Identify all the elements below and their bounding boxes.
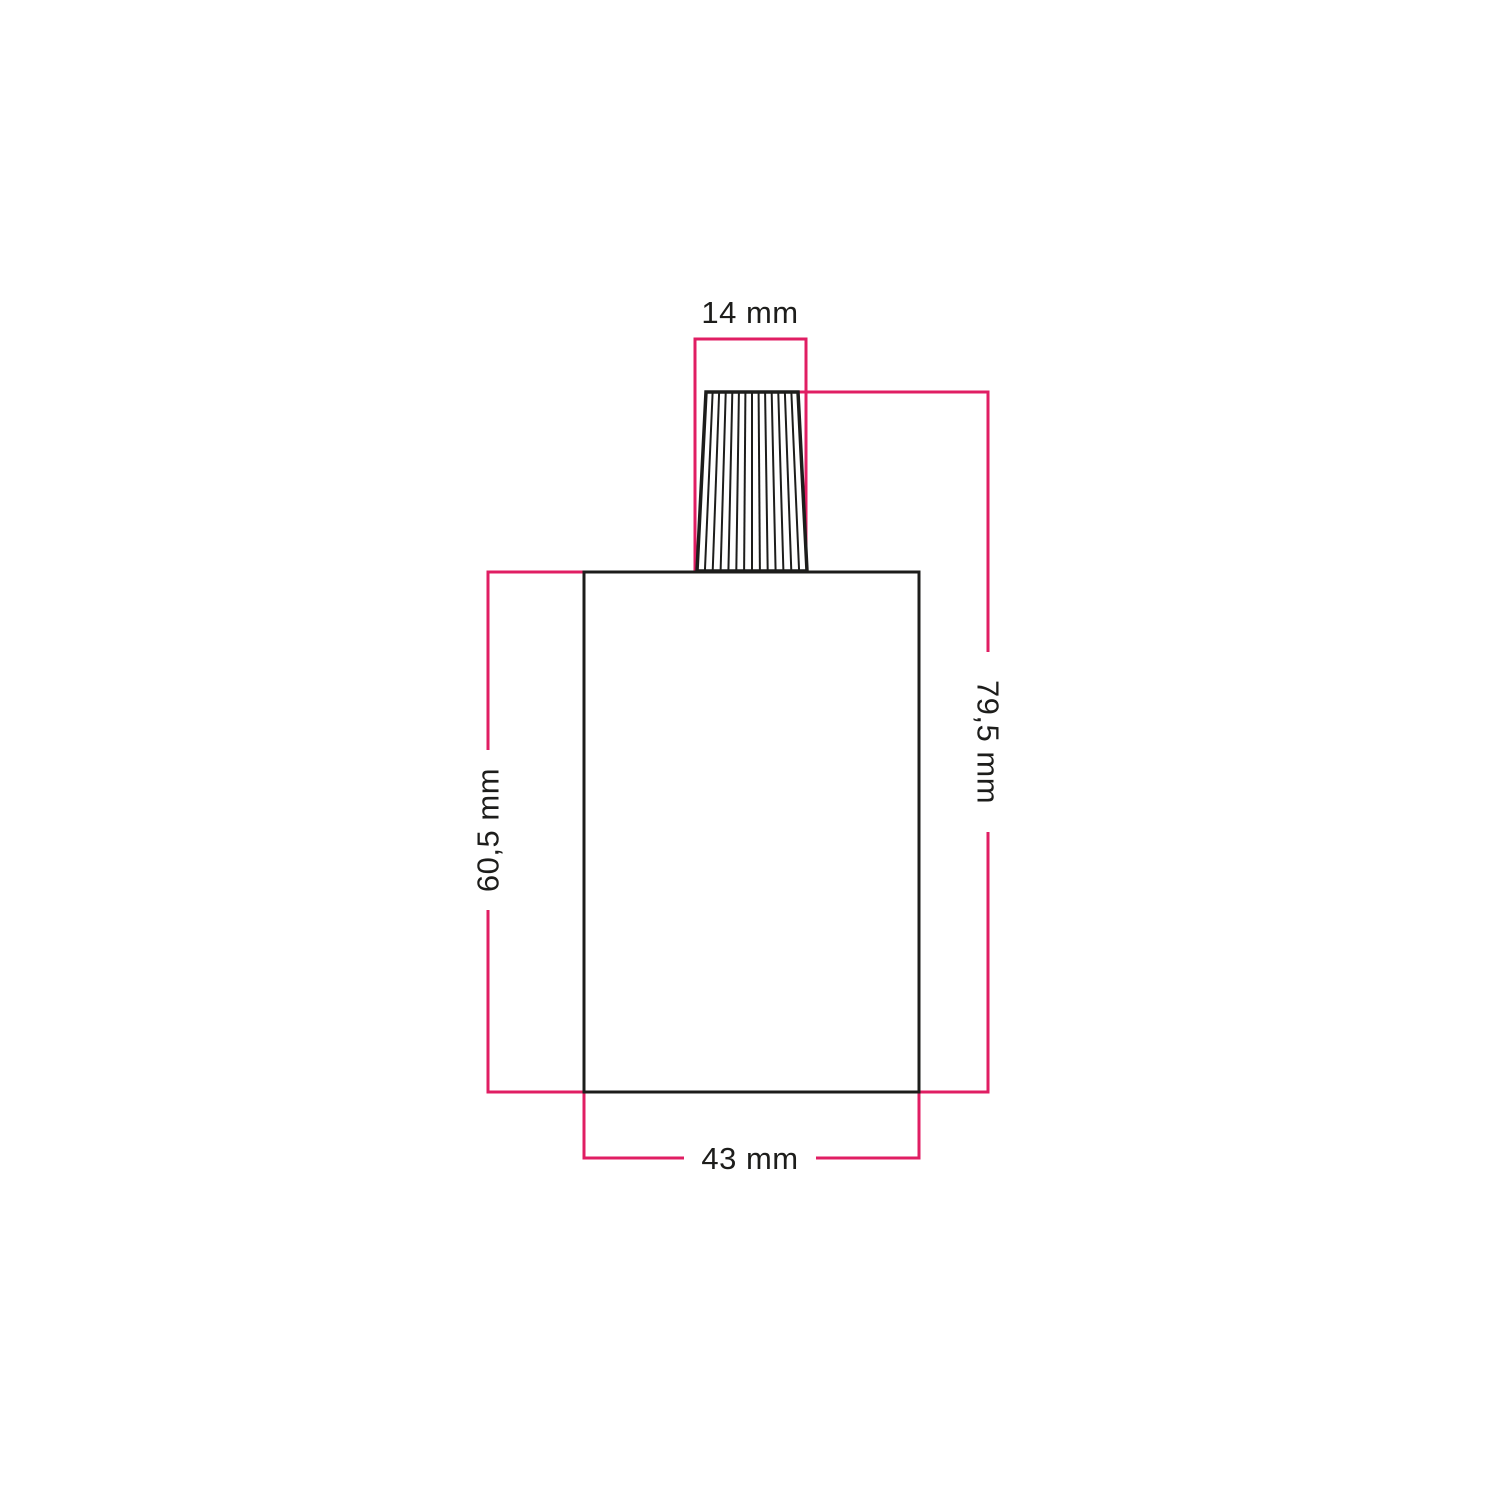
dimension-line-body-width-left	[584, 1092, 684, 1158]
dimension-drawing: 14 mm 79,5 mm 60,5 mm 43 mm	[0, 0, 1500, 1500]
dimension-line-body-width-right	[816, 1092, 919, 1158]
dimension-line-total-height-lower	[918, 832, 988, 1092]
dimension-line-body-height-upper	[488, 572, 584, 750]
label-total-height: 79,5 mm	[971, 680, 1006, 804]
drawing-canvas: 14 mm 79,5 mm 60,5 mm 43 mm	[0, 0, 1500, 1500]
rib-line	[759, 393, 760, 571]
socket-body-outline	[584, 572, 919, 1092]
dimension-line-body-height-lower	[488, 910, 584, 1092]
label-grip-width: 14 mm	[701, 295, 798, 330]
label-body-height: 60,5 mm	[471, 768, 506, 892]
product-outline	[584, 392, 919, 1092]
rib-line	[744, 393, 745, 571]
label-body-width: 43 mm	[701, 1141, 798, 1176]
